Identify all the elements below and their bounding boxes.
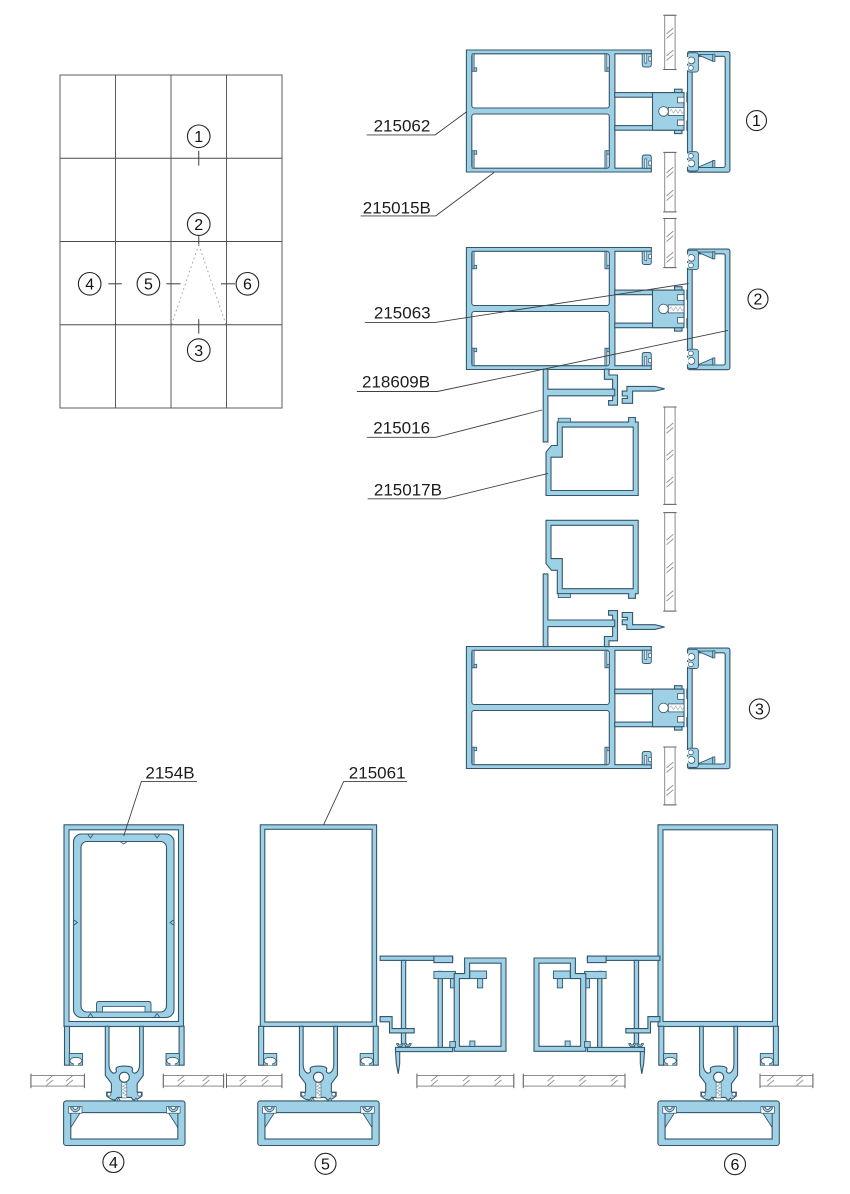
svg-text:2154B: 2154B bbox=[145, 764, 194, 783]
svg-text:5: 5 bbox=[321, 1157, 330, 1174]
svg-text:6: 6 bbox=[731, 1157, 740, 1174]
svg-text:218609B: 218609B bbox=[362, 373, 430, 392]
svg-text:5: 5 bbox=[144, 277, 153, 294]
svg-text:1: 1 bbox=[194, 129, 203, 146]
svg-text:3: 3 bbox=[194, 343, 203, 360]
svg-text:2: 2 bbox=[754, 292, 763, 309]
svg-text:4: 4 bbox=[85, 277, 94, 294]
svg-text:215016: 215016 bbox=[373, 419, 430, 438]
svg-text:215063: 215063 bbox=[374, 304, 431, 323]
svg-text:1: 1 bbox=[752, 113, 761, 130]
svg-text:2: 2 bbox=[194, 217, 203, 234]
svg-text:215061: 215061 bbox=[349, 764, 406, 783]
svg-text:215017B: 215017B bbox=[374, 480, 442, 499]
svg-text:215015B: 215015B bbox=[363, 199, 431, 218]
svg-text:215062: 215062 bbox=[374, 117, 431, 136]
svg-text:3: 3 bbox=[755, 702, 764, 719]
svg-text:4: 4 bbox=[109, 1155, 118, 1172]
svg-text:6: 6 bbox=[243, 277, 252, 294]
